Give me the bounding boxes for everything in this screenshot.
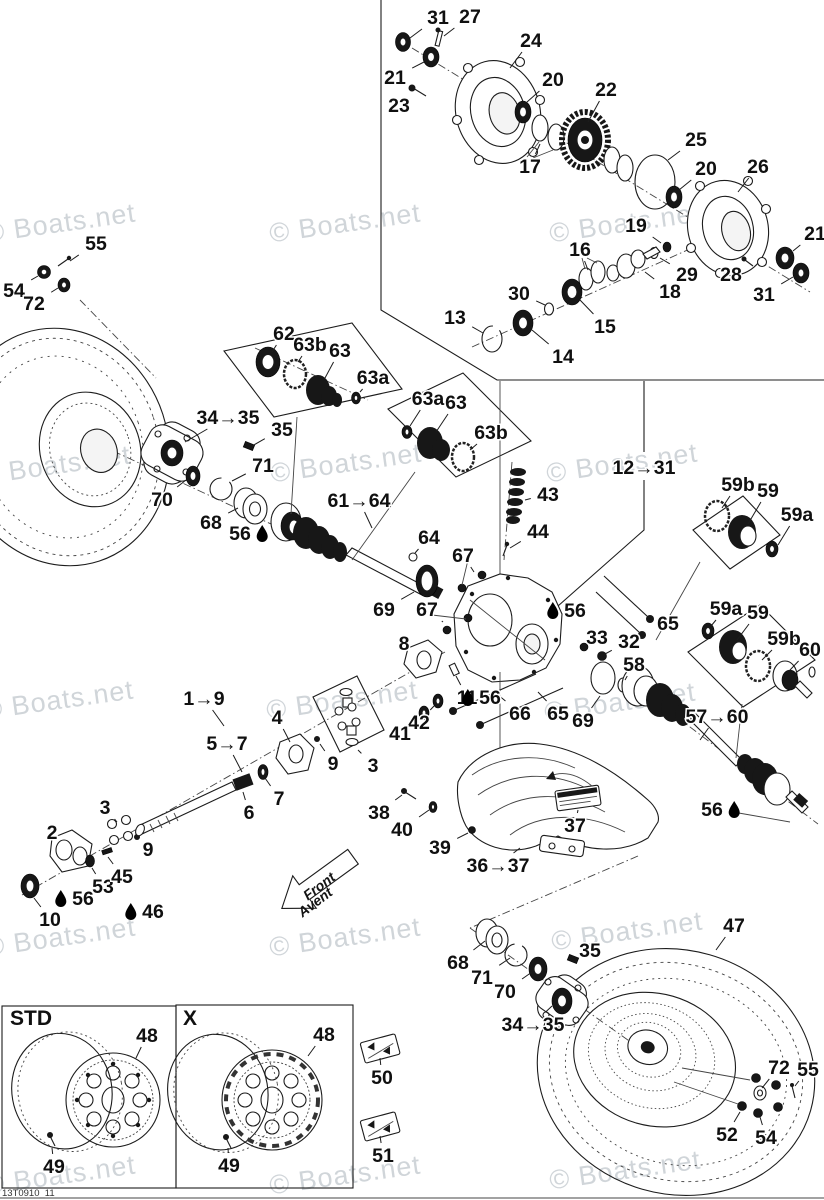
callout-63b: 63b bbox=[293, 334, 327, 356]
front-direction-arrow: Front Avent bbox=[270, 841, 365, 925]
callout-68: 68 bbox=[200, 512, 222, 534]
leader-line bbox=[793, 245, 800, 251]
leader-line bbox=[645, 272, 654, 279]
parts-diagram-page: © Boats.net© Boats.net© Boats.net© Boats… bbox=[0, 0, 824, 1200]
leader-line bbox=[70, 255, 79, 261]
leader-line bbox=[734, 1112, 740, 1122]
leader-line bbox=[232, 474, 246, 481]
callout-1→9: 1→9 bbox=[183, 688, 224, 710]
leader-line bbox=[419, 810, 429, 817]
callout-44: 44 bbox=[527, 521, 549, 543]
callout-13: 13 bbox=[444, 307, 466, 329]
leader-line bbox=[436, 414, 448, 432]
std-box-title: STD bbox=[10, 1007, 52, 1030]
callout-63b: 63b bbox=[474, 422, 508, 444]
callout-69: 69 bbox=[373, 599, 395, 621]
callout-22: 22 bbox=[595, 79, 617, 101]
callout-33: 33 bbox=[586, 627, 608, 649]
leader-line bbox=[456, 676, 461, 685]
callout-3: 3 bbox=[368, 755, 379, 777]
callout-20: 20 bbox=[695, 158, 717, 180]
callout-9: 9 bbox=[143, 839, 154, 861]
callout-35: 35 bbox=[271, 419, 293, 441]
callout-62: 62 bbox=[273, 323, 295, 345]
leader-line bbox=[52, 1148, 53, 1154]
leader-line bbox=[92, 868, 96, 874]
callout-3: 3 bbox=[100, 797, 111, 819]
callout-47: 47 bbox=[723, 915, 745, 937]
leader-line bbox=[51, 288, 58, 292]
watermark-text: © Boats.net bbox=[0, 675, 136, 726]
callout-72: 72 bbox=[23, 293, 45, 315]
leader-line bbox=[395, 795, 402, 800]
leader-line bbox=[34, 898, 41, 907]
callout-63: 63 bbox=[445, 392, 467, 414]
callout-70: 70 bbox=[151, 489, 173, 511]
callout-18: 18 bbox=[659, 281, 681, 303]
leader-line bbox=[358, 750, 361, 753]
callout-39: 39 bbox=[429, 837, 451, 859]
leader-line bbox=[265, 778, 271, 786]
callout-63a: 63a bbox=[412, 388, 445, 410]
leader-line bbox=[660, 258, 670, 264]
callout-57→60: 57→60 bbox=[686, 706, 749, 728]
callout-46: 46 bbox=[142, 901, 164, 923]
vent-spring bbox=[503, 468, 526, 556]
callout-21: 21 bbox=[804, 223, 824, 245]
leader-line bbox=[580, 300, 593, 314]
callout-35: 35 bbox=[579, 940, 601, 962]
callout-2: 2 bbox=[47, 822, 58, 844]
callout-40: 40 bbox=[391, 819, 413, 841]
callout-71: 71 bbox=[471, 967, 493, 989]
callout-10: 10 bbox=[39, 909, 61, 931]
callout-24: 24 bbox=[520, 30, 542, 52]
callout-65: 65 bbox=[657, 613, 679, 635]
leader-line bbox=[136, 1047, 141, 1058]
leader-line bbox=[213, 710, 224, 726]
left-cv-axle bbox=[271, 503, 443, 599]
callout-59b: 59b bbox=[721, 474, 755, 496]
leader-line bbox=[532, 330, 549, 344]
callout-20: 20 bbox=[542, 69, 564, 91]
callout-21: 21 bbox=[384, 67, 406, 89]
callout-59b: 59b bbox=[767, 628, 801, 650]
callout-56: 56 bbox=[479, 687, 501, 709]
leader-line bbox=[252, 439, 265, 446]
diagram-canvas: © Boats.net© Boats.net© Boats.net© Boats… bbox=[0, 0, 824, 1200]
callout-8: 8 bbox=[399, 633, 410, 655]
leader-line bbox=[760, 1117, 762, 1125]
lube-droplet-icon bbox=[729, 801, 740, 818]
callout-63a: 63a bbox=[357, 367, 390, 389]
callout-59a: 59a bbox=[781, 504, 814, 526]
leader-line bbox=[233, 755, 242, 772]
leader-line bbox=[668, 151, 680, 160]
leader-line bbox=[108, 857, 113, 864]
leader-line bbox=[472, 327, 483, 333]
callout-19: 19 bbox=[625, 215, 647, 237]
leader-line bbox=[711, 620, 716, 626]
leader-line bbox=[415, 549, 419, 553]
callout-59: 59 bbox=[757, 480, 779, 502]
callout-61→64: 61→64 bbox=[328, 490, 391, 512]
leader-line bbox=[308, 1046, 315, 1056]
leader-line bbox=[243, 792, 245, 800]
callout-34→35: 34→35 bbox=[197, 407, 260, 429]
leader-line bbox=[795, 1081, 799, 1086]
callout-54: 54 bbox=[755, 1127, 777, 1149]
leader-line bbox=[653, 237, 661, 243]
callout-25: 25 bbox=[685, 129, 707, 151]
callout-55: 55 bbox=[797, 1059, 819, 1081]
callout-48: 48 bbox=[313, 1024, 335, 1046]
callout-55: 55 bbox=[85, 233, 107, 255]
callout-15: 15 bbox=[594, 316, 616, 338]
watermark-text: © Boats.net bbox=[268, 438, 423, 489]
callout-56: 56 bbox=[564, 600, 586, 622]
axle-nut-hardware-left bbox=[38, 256, 72, 292]
leader-line bbox=[401, 592, 414, 599]
leader-line bbox=[471, 567, 474, 572]
leader-line bbox=[457, 833, 468, 838]
callout-32: 32 bbox=[618, 631, 640, 653]
leader-line bbox=[716, 937, 725, 950]
leader-line bbox=[536, 301, 545, 305]
leader-line bbox=[410, 29, 422, 38]
callout-9: 9 bbox=[328, 753, 339, 775]
leader-line bbox=[320, 744, 325, 751]
watermark-text: © Boats.net bbox=[547, 1145, 702, 1196]
callout-59a: 59a bbox=[710, 598, 743, 620]
leader-line bbox=[442, 621, 443, 622]
watermark-text: © Boats.net bbox=[0, 912, 138, 963]
x-box-title: X bbox=[183, 1007, 197, 1030]
callout-72: 72 bbox=[768, 1057, 790, 1079]
callout-30: 30 bbox=[508, 283, 530, 305]
callout-71: 71 bbox=[252, 455, 274, 477]
callout-14: 14 bbox=[552, 346, 574, 368]
leader-line bbox=[499, 958, 510, 965]
callout-23: 23 bbox=[388, 95, 410, 117]
leader-line bbox=[577, 810, 578, 813]
callout-64: 64 bbox=[418, 527, 440, 549]
callout-4: 4 bbox=[272, 707, 283, 729]
callout-66: 66 bbox=[509, 703, 531, 725]
leader-line bbox=[605, 650, 612, 654]
leader-line bbox=[762, 1079, 769, 1088]
callout-41: 41 bbox=[389, 723, 411, 745]
callout-54: 54 bbox=[3, 280, 25, 302]
watermark-text: © Boats.net bbox=[0, 198, 138, 249]
watermark-text: © Boats.net bbox=[264, 675, 419, 726]
watermark-text: © Boats.net bbox=[267, 198, 422, 249]
leader-line bbox=[525, 498, 531, 500]
callout-45: 45 bbox=[111, 866, 133, 888]
callout-63: 63 bbox=[329, 340, 351, 362]
callout-50: 50 bbox=[371, 1067, 393, 1089]
callout-67: 67 bbox=[452, 545, 474, 567]
diagram-code: 13T0910_11 bbox=[2, 1188, 55, 1199]
callout-59: 59 bbox=[747, 602, 769, 624]
leader-line bbox=[410, 410, 420, 426]
leader-line bbox=[31, 276, 38, 280]
callout-27: 27 bbox=[459, 6, 481, 28]
leader-line bbox=[510, 541, 521, 548]
callout-49: 49 bbox=[218, 1155, 240, 1177]
callout-7: 7 bbox=[274, 788, 285, 810]
callout-37: 37 bbox=[564, 815, 586, 837]
leader-line bbox=[679, 180, 691, 190]
lube-droplet-icon bbox=[125, 903, 136, 920]
callout-65: 65 bbox=[547, 703, 569, 725]
callout-49: 49 bbox=[43, 1156, 65, 1178]
callout-31: 31 bbox=[753, 284, 775, 306]
callout-42: 42 bbox=[408, 712, 430, 734]
leader-line bbox=[360, 389, 363, 392]
callout-26: 26 bbox=[747, 156, 769, 178]
callout-56: 56 bbox=[72, 888, 94, 910]
callout-16: 16 bbox=[569, 239, 591, 261]
callout-12→31: 12→31 bbox=[613, 457, 676, 479]
callout-58: 58 bbox=[623, 654, 645, 676]
callout-52: 52 bbox=[716, 1124, 738, 1146]
callout-43: 43 bbox=[537, 484, 559, 506]
callout-51: 51 bbox=[372, 1145, 394, 1167]
leader-line bbox=[365, 512, 372, 528]
leader-line bbox=[444, 28, 454, 36]
lube-droplet-icon bbox=[257, 525, 268, 542]
callout-28: 28 bbox=[720, 264, 742, 286]
callout-56: 56 bbox=[229, 523, 251, 545]
callout-67: 67 bbox=[416, 599, 438, 621]
callout-5→7: 5→7 bbox=[206, 733, 247, 755]
callout-70: 70 bbox=[494, 981, 516, 1003]
callout-6: 6 bbox=[244, 802, 255, 824]
callout-38: 38 bbox=[368, 802, 390, 824]
callout-17: 17 bbox=[519, 156, 541, 178]
callout-31: 31 bbox=[427, 7, 449, 29]
callout-48: 48 bbox=[136, 1025, 158, 1047]
lube-droplet-icon bbox=[55, 890, 66, 907]
watermark-text: © Boats.net bbox=[267, 912, 422, 963]
callout-36→37: 36→37 bbox=[467, 855, 530, 877]
callout-69: 69 bbox=[572, 710, 594, 732]
callout-56: 56 bbox=[701, 799, 723, 821]
callout-68: 68 bbox=[447, 952, 469, 974]
callout-60: 60 bbox=[799, 639, 821, 661]
leader-line bbox=[412, 62, 424, 68]
leader-line bbox=[430, 706, 434, 710]
watermark-text: © Boats.net bbox=[267, 1150, 422, 1200]
callout-34→35: 34→35 bbox=[502, 1014, 565, 1036]
leader-line bbox=[325, 362, 334, 378]
